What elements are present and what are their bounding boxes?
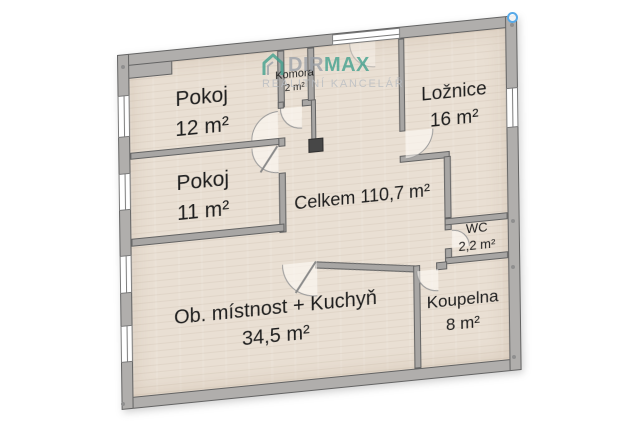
window-living-1 (120, 255, 132, 294)
corner-selection-handle[interactable] (507, 12, 518, 23)
wall-marker-dot (510, 23, 514, 27)
window-pokoj11 (119, 173, 131, 211)
room-label-koupelna: Koupelna 8 m² (427, 284, 499, 339)
room-label-wc: WC 2,2 m² (458, 219, 495, 256)
window-loznice (506, 87, 519, 128)
window-pokoj12 (118, 95, 131, 138)
room-label-pokoj12: Pokoj 12 m² (175, 80, 229, 145)
house-icon (262, 53, 284, 77)
brand-suffix: MAX (324, 54, 370, 76)
window-living-2 (121, 325, 133, 363)
room-label-pokoj11: Pokoj 11 m² (176, 164, 229, 229)
room-label-loznice: Ložnice 16 m² (421, 76, 487, 136)
agency-watermark: DIRMAX REALITNÍ KANCELÁŘ (262, 53, 404, 90)
chimney-block (308, 138, 323, 154)
wall-marker-dot (121, 402, 125, 406)
wall-marker-dot (511, 219, 515, 223)
wall-marker-dot (511, 265, 515, 269)
floorplan-canvas: Pokoj 12 m² Pokoj 11 m² Ložnice 16 m² Ko… (0, 0, 640, 426)
wall-marker-dot (512, 355, 516, 359)
brand-subtitle: REALITNÍ KANCELÁŘ (262, 79, 404, 90)
room-area: 12 m² (175, 110, 229, 145)
room-area: 11 m² (177, 194, 230, 229)
wall-hall-loznice-extension (444, 156, 452, 219)
wall-chimney-stub (311, 99, 317, 141)
brand-name: DIRMAX (288, 55, 370, 75)
brand-prefix: DIR (288, 54, 324, 76)
wall-marker-dot (121, 65, 125, 69)
wall-wc-left-upper-jamb (445, 224, 452, 231)
